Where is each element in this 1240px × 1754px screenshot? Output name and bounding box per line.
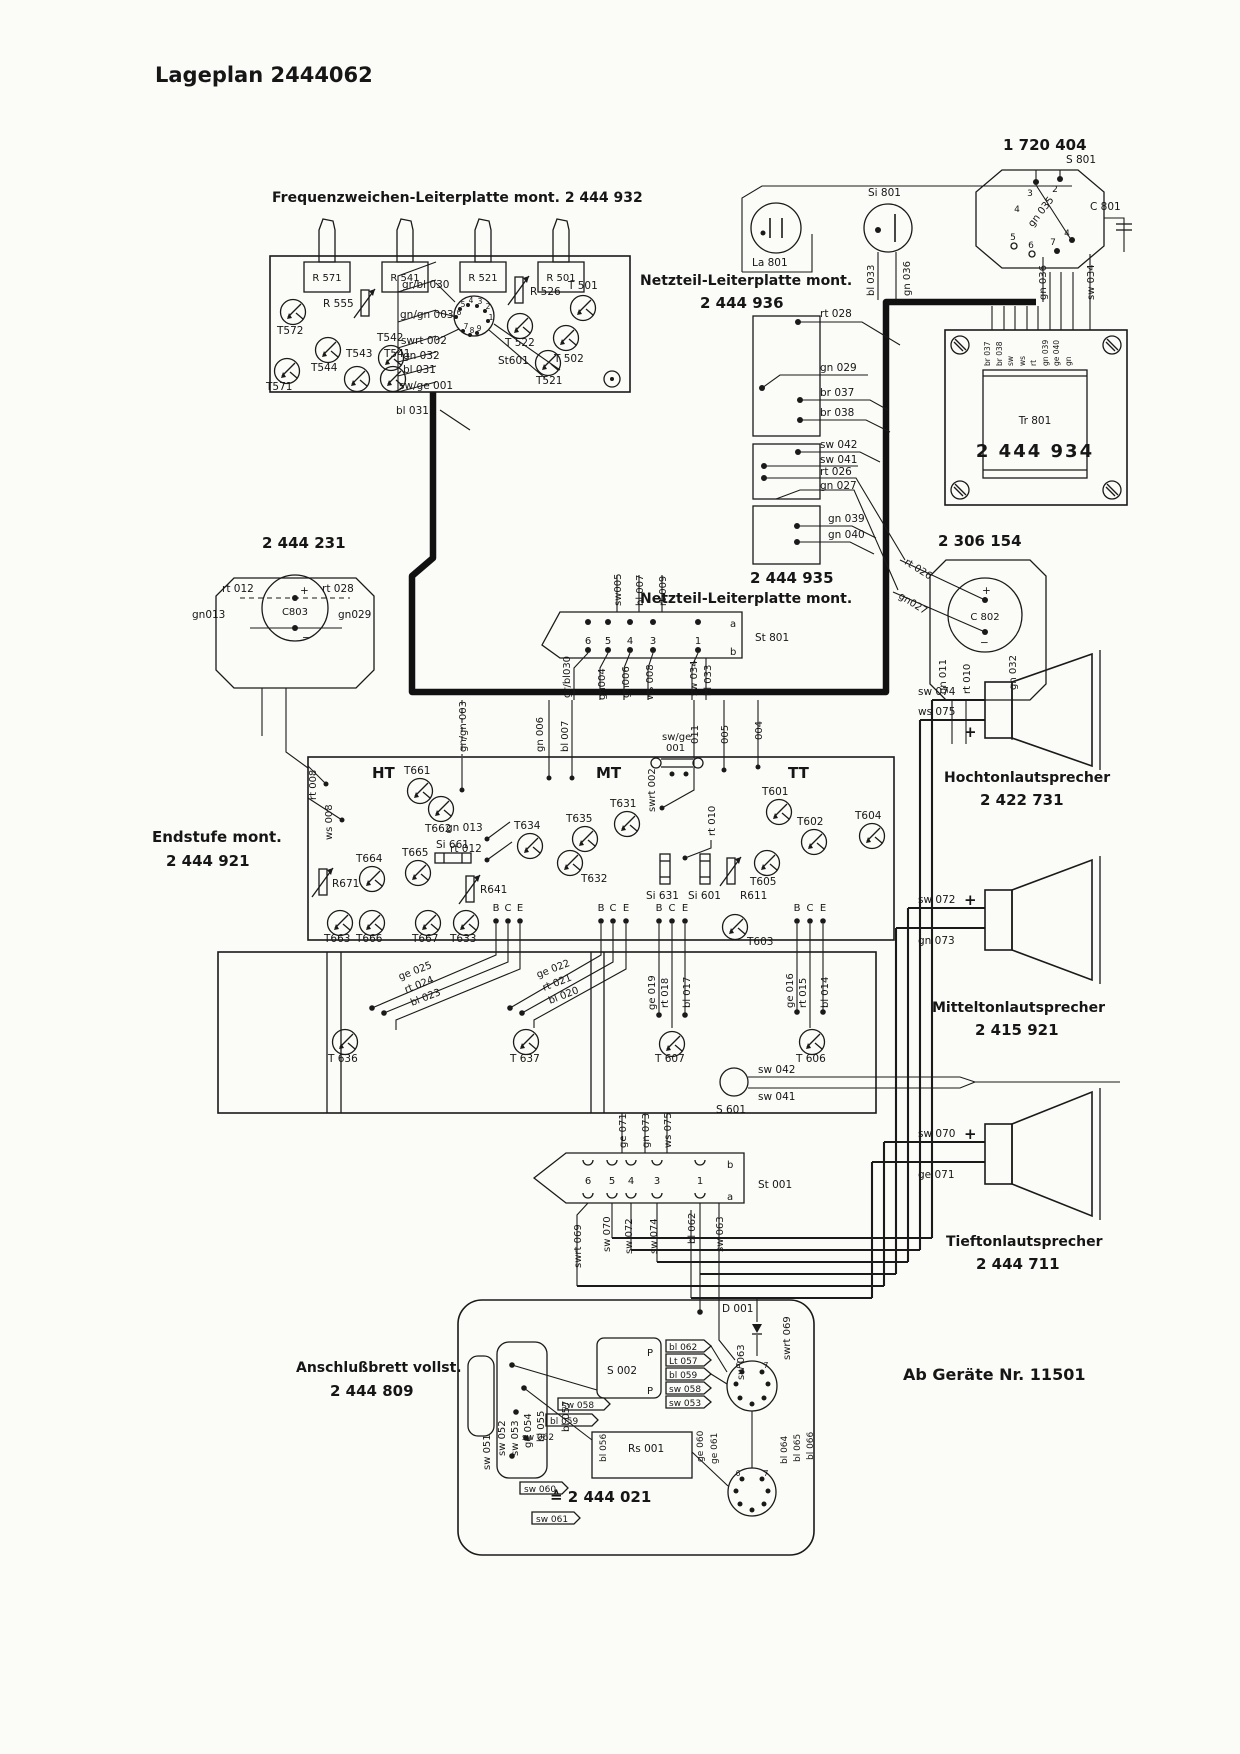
part-label: T 501 xyxy=(567,280,598,292)
transistor-icon xyxy=(316,338,341,363)
pin-number: 3 xyxy=(478,297,483,306)
st001-connector: ge 071 gn 073 ws 075 6 5 4 3 1 b a St 00… xyxy=(534,1112,792,1310)
fuse-icon xyxy=(700,854,710,884)
terminal-label: E xyxy=(820,903,826,914)
bce-group-2: BCE xyxy=(598,903,630,924)
part-label: T632 xyxy=(580,873,607,885)
wire-label: rt 018 xyxy=(660,978,671,1008)
part-label: C 802 xyxy=(970,612,999,623)
row-label: b xyxy=(727,1160,733,1171)
part-label: T661 xyxy=(403,765,430,777)
transistor-icon xyxy=(802,830,827,855)
pin-number: 5 xyxy=(609,1176,615,1187)
part-label: T543 xyxy=(345,348,372,360)
wire-label: gr/bl030 xyxy=(562,656,573,698)
wire-label: ge 040 xyxy=(1052,340,1061,366)
wire-label: sw/ge 001 xyxy=(399,380,453,392)
pin-number: 2 xyxy=(1052,185,1058,195)
wire-label: bl 066 xyxy=(806,1431,816,1460)
resistor-icon xyxy=(354,289,375,318)
part-label: C 801 xyxy=(1090,201,1121,213)
part-number: 2 444 934 xyxy=(976,441,1094,462)
polarity-plus: + xyxy=(964,891,977,909)
terminal-label: P xyxy=(647,1386,653,1397)
wire-label: gn006 xyxy=(621,666,632,698)
wire-label: sw005 xyxy=(613,574,624,606)
part-number: 2 444 936 xyxy=(700,294,784,312)
part-label: T634 xyxy=(513,820,541,832)
wire-label: 004 xyxy=(754,721,765,740)
wire-label: gn 073 xyxy=(918,935,955,947)
wire-label: gn/gn 003 xyxy=(458,701,469,752)
part-number: 2 444 711 xyxy=(976,1255,1060,1273)
wire-label: bl 031 xyxy=(396,405,429,417)
wire-label: sw 052 xyxy=(497,1420,508,1456)
part-label: Si 631 xyxy=(646,890,679,902)
pin-number: 6 xyxy=(457,308,462,317)
terminal-label: E xyxy=(623,903,629,914)
transistor-icon xyxy=(558,851,583,876)
section-label: TT xyxy=(788,764,810,782)
terminal-label: B xyxy=(598,903,605,914)
part-label: Si 801 xyxy=(868,187,901,199)
transistor-icon xyxy=(615,812,640,837)
part-label: T 636 xyxy=(327,1053,358,1065)
part-label: T605 xyxy=(749,876,776,888)
wire-label: rt 012 xyxy=(222,583,254,595)
wire-label: sw 058 xyxy=(669,1385,701,1395)
part-label: T 637 xyxy=(509,1053,540,1065)
part-label: T542 xyxy=(376,332,403,344)
transistor-icon xyxy=(275,359,300,384)
terminal-label: C xyxy=(610,903,617,914)
fuse-si801: Si 801 bl 033 gn 036 xyxy=(864,187,913,300)
pin-number: 9 xyxy=(477,324,482,333)
part-label: T666 xyxy=(355,933,383,945)
part-label: T635 xyxy=(565,813,592,825)
part-label: T631 xyxy=(609,798,636,810)
speaker-name: Mitteltonlautsprecher xyxy=(932,1000,1105,1016)
wire-label: sw 034 xyxy=(689,660,700,696)
polarity-plus: + xyxy=(964,1125,977,1143)
wire-label: sw/ge xyxy=(662,732,691,743)
wire-label: gn 013 xyxy=(446,822,483,834)
wire-label: bl 031 xyxy=(403,364,436,376)
fuse-icon xyxy=(660,854,670,884)
wire-label: swrt 069 xyxy=(782,1316,793,1360)
speaker-name: Tieftonlautsprecher xyxy=(946,1234,1103,1250)
section-label: HT xyxy=(372,764,396,782)
wire-label: gn 032 xyxy=(403,350,440,362)
part-label: T633 xyxy=(449,933,476,945)
wire-label: gn 032 xyxy=(1008,655,1019,690)
bce-group-4: BCE xyxy=(794,903,827,924)
chassis: ge 025 rt 024 bl 023 T 636 ge 022 rt 021… xyxy=(218,924,1120,1116)
wire-label: sw 074 xyxy=(649,1218,660,1254)
terminal-label: C xyxy=(505,903,512,914)
wire-label: bl 064 xyxy=(780,1435,790,1464)
part-number: 2 444 809 xyxy=(330,1382,414,1400)
wire-label: rt 026 xyxy=(820,466,852,478)
wire-label: sw 070 xyxy=(918,1128,955,1140)
wire-label: swrt 002 xyxy=(647,768,658,812)
part-number: 2 422 731 xyxy=(980,791,1064,809)
screw-icon xyxy=(1103,481,1121,499)
section-label: MT xyxy=(596,764,622,782)
pin-number: 5 xyxy=(605,636,611,647)
part-label: T521 xyxy=(535,375,562,387)
pot-label: R 571 xyxy=(312,273,341,284)
part-label: R 555 xyxy=(323,298,354,310)
part-label: Rs 001 xyxy=(628,1443,664,1455)
part-label: C803 xyxy=(282,607,308,618)
part-label: T 606 xyxy=(795,1053,826,1065)
layout-diagram: Lageplan 2444062 Ab Geräte Nr. 11501 Fre… xyxy=(0,0,1240,1754)
wire-label: ge 061 xyxy=(710,1433,720,1464)
part-number: 2 444 921 xyxy=(166,852,250,870)
transformer-tr801: Tr 801 2 444 934 br 037 br 038 sw ws rt … xyxy=(945,272,1127,505)
wire-label: sw xyxy=(1006,356,1015,366)
wire-label: ws xyxy=(1018,356,1027,366)
transistor-icon xyxy=(573,827,598,852)
board-caption: Netzteil-Leiterplatte mont. xyxy=(640,273,852,289)
row-label: b xyxy=(730,647,736,658)
wire-label: gn027 xyxy=(896,591,929,617)
part-number: 2 306 154 xyxy=(938,532,1022,550)
wire-label: bl 007 xyxy=(635,575,646,606)
footer-note: Ab Geräte Nr. 11501 xyxy=(903,1365,1085,1384)
part-label: T 607 xyxy=(654,1053,685,1065)
wire-label: bl 056 xyxy=(599,1433,609,1462)
wire-label: 005 xyxy=(720,725,731,744)
capacitor-c803: 2 444 231 + C803 − rt 012 rt 028 gn013 g… xyxy=(192,534,374,768)
wire-label: rt 012 xyxy=(450,843,482,855)
pin-number: 1 xyxy=(697,1176,703,1187)
part-label: D 001 xyxy=(722,1303,753,1315)
wire-label: bl 007 xyxy=(560,721,571,752)
pin-number: 4 xyxy=(1014,205,1020,215)
part-label: T601 xyxy=(761,786,788,798)
part-label: T664 xyxy=(355,853,383,865)
minus-sign: − xyxy=(980,637,989,649)
wire-label: sw 061 xyxy=(536,1515,568,1525)
wire-label: swrt 069 xyxy=(573,1224,584,1268)
pin-number: 1 xyxy=(489,313,494,322)
part-number: 1 720 404 xyxy=(1003,136,1087,154)
wire-label: gn xyxy=(1064,356,1073,366)
wire-label: sw 041 xyxy=(758,1091,795,1103)
part-label: T572 xyxy=(276,325,303,337)
pin-number: 8 xyxy=(470,326,475,335)
board-caption: Anschlußbrett vollst. xyxy=(296,1360,462,1376)
terminal-label: C xyxy=(807,903,814,914)
wire-label: ws 008 xyxy=(645,664,656,700)
pin-number: 7 xyxy=(464,322,469,331)
pin-number: 7 xyxy=(1050,238,1056,248)
wire-label: bl 065 xyxy=(793,1434,803,1462)
transistor-icon xyxy=(360,867,385,892)
transistor-icon xyxy=(508,314,533,339)
wire-label: bl 062 xyxy=(669,1343,697,1353)
wire-label: gn 073 xyxy=(641,1113,652,1148)
wire-label: sw 072 xyxy=(624,1218,635,1254)
wire-label: swrt 002 xyxy=(401,335,447,347)
row-label: a xyxy=(730,619,736,630)
transistor-icon xyxy=(767,800,792,825)
wire-label: gn 035 xyxy=(1026,195,1056,229)
part-label: R611 xyxy=(740,890,767,902)
wire-label: sw 041 xyxy=(820,454,857,466)
wire-label: sw 074 xyxy=(918,686,956,698)
part-label: T603 xyxy=(746,936,773,948)
wire-label: ge 016 xyxy=(785,973,796,1008)
speaker-tiefton: sw 070 ge 071 + Tieftonlautsprecher 2 44… xyxy=(872,1088,1103,1273)
transistor-icon xyxy=(416,911,441,936)
wire-label: ge 071 xyxy=(618,1113,629,1148)
part-label: S 601 xyxy=(716,1104,746,1116)
part-label: T604 xyxy=(854,810,882,822)
wire-label: ge 071 xyxy=(918,1169,955,1181)
st801-connector: 2 444 935 Netzteil-Leiterplatte mont. sw… xyxy=(542,569,852,700)
wire-label: Lt 057 xyxy=(669,1357,698,1367)
terminal-label: E xyxy=(517,903,523,914)
wire-label: br 038 xyxy=(820,407,854,419)
terminal-label: E xyxy=(682,903,688,914)
part-label: Si 601 xyxy=(688,890,721,902)
pot-label: R 521 xyxy=(468,273,497,284)
part-label: T667 xyxy=(411,933,438,945)
pin-number: 4 xyxy=(628,1176,634,1187)
wire-label: bl 014 xyxy=(820,977,831,1008)
wire-label: rt 010 xyxy=(707,806,718,836)
resistor-icon xyxy=(720,857,741,886)
pin-number: 6 xyxy=(585,636,591,647)
part-number: 2 444 231 xyxy=(262,534,346,552)
part-label: St 801 xyxy=(755,632,789,644)
resistor-icon xyxy=(312,868,333,897)
wire-label: rt xyxy=(1029,360,1038,366)
wire-label: 011 xyxy=(690,725,701,744)
speaker-cables xyxy=(577,700,932,1298)
wire-label: sw 042 xyxy=(820,439,857,451)
pin-number: 5 xyxy=(1010,233,1016,243)
wire-label: sw 060 xyxy=(524,1485,556,1495)
wire-label: gn 027 xyxy=(820,480,857,492)
transistor-icon xyxy=(860,824,885,849)
part-label: T663 xyxy=(323,933,350,945)
transistor-icon xyxy=(281,300,306,325)
wire-label: gn013 xyxy=(192,609,225,621)
screw-icon xyxy=(951,336,969,354)
board-caption: Netzteil-Leiterplatte mont. xyxy=(640,591,852,607)
wire-label: br 037 xyxy=(983,341,992,366)
transistor-icon xyxy=(800,1030,825,1055)
wire-label: br 038 xyxy=(995,341,1004,366)
transistor-icon xyxy=(571,296,596,321)
din-connector-1: 6 7 xyxy=(727,1361,777,1411)
pin-number: 4 xyxy=(627,636,633,647)
wire-label: gn 036 xyxy=(902,261,913,296)
wire-label: gn004 xyxy=(597,668,608,700)
resistor-icon xyxy=(459,875,480,904)
transformer-wire-labels: br 037 br 038 sw ws rt gn 039 ge 040 gn xyxy=(983,272,1073,366)
capacitor-c802: 2 306 154 rt 026 gn027 + C 802 − gn 011 … xyxy=(893,532,1046,744)
screw-icon xyxy=(951,481,969,499)
pin-number: 3 xyxy=(654,1176,660,1187)
pin-number: 3 xyxy=(1027,189,1033,199)
transistor-icon xyxy=(454,911,479,936)
polarity-plus: + xyxy=(964,723,977,741)
terminal-label: P xyxy=(647,1348,653,1359)
wire-label: bl 062 xyxy=(687,1213,698,1244)
part-label: R 526 xyxy=(530,286,561,298)
part-label: R671 xyxy=(332,878,359,890)
speaker-name: Hochtonlautsprecher xyxy=(944,770,1110,786)
freq-crossover-board: Frequenzweichen-Leiterplatte mont. 2 444… xyxy=(265,190,643,430)
wire-label: gn 006 xyxy=(535,717,546,752)
terminal-label: B xyxy=(656,903,663,914)
board-caption: Endstufe mont. xyxy=(152,828,282,846)
wire-label: rt 028 xyxy=(820,308,852,320)
wire-label: bl 033 xyxy=(703,665,714,696)
transistor-icon xyxy=(360,911,385,936)
part-number: 2 444 935 xyxy=(750,569,834,587)
wire-label: sw 058 xyxy=(562,1401,594,1411)
capacitor-c801: C 801 xyxy=(1090,201,1132,252)
wire-label: gn 029 xyxy=(820,362,857,374)
wire-label: ws 075 xyxy=(663,1112,674,1148)
transistor-icon xyxy=(723,915,748,940)
plug-s801: S 801 3 2 4 5 6 7 gn 035 4 xyxy=(976,154,1104,268)
wire-label: rt 008 xyxy=(308,770,319,800)
wire-label: rt 026 xyxy=(902,557,934,582)
part-label: R641 xyxy=(480,884,507,896)
part-label: T544 xyxy=(310,362,338,374)
part-label: St601 xyxy=(498,355,529,367)
pin-number: 6 xyxy=(736,1361,741,1370)
pin-number: 2 xyxy=(486,302,491,311)
bce-group-3: BCE xyxy=(656,903,689,924)
wire-label: br 037 xyxy=(820,387,854,399)
transistor-icon xyxy=(408,779,433,804)
wire-label: rt 010 xyxy=(962,664,973,694)
part-label: St 001 xyxy=(758,1179,792,1191)
transistor-icon xyxy=(755,851,780,876)
pin-number: 6 xyxy=(736,1469,741,1478)
transistor-icon xyxy=(554,326,579,351)
wire-label: bl 059 xyxy=(669,1371,698,1381)
wire-label: sw 034 xyxy=(1086,264,1097,300)
wire-label: gn029 xyxy=(338,609,371,621)
pin-number: 7 xyxy=(764,1469,769,1478)
transistor-icon xyxy=(328,911,353,936)
screw-icon xyxy=(1103,336,1121,354)
wire-label: rt 015 xyxy=(798,978,809,1008)
pin-number: 3 xyxy=(650,636,656,647)
wire-label: rt 009 xyxy=(658,576,669,606)
transistor-icon xyxy=(429,797,454,822)
wire-label: sw 053 xyxy=(669,1399,701,1409)
wire-label: sw 070 xyxy=(602,1216,613,1252)
wire-label: ge 019 xyxy=(647,975,658,1010)
terminal-label: B xyxy=(493,903,500,914)
transistor-icon xyxy=(406,861,431,886)
endstufe-board: Endstufe mont. 2 444 921 HT MT TT rt 008… xyxy=(152,700,894,948)
s601-switch: sw 042 sw 041 S 601 xyxy=(716,1064,1120,1116)
pin-number: 6 xyxy=(585,1176,591,1187)
wire-label: sw 051 xyxy=(482,1434,493,1470)
transistor-icon xyxy=(345,367,370,392)
din-connector-2: 6 7 xyxy=(728,1468,776,1516)
wire-label: sw 062 xyxy=(522,1433,554,1443)
pin-number: 7 xyxy=(764,1361,769,1370)
wire-label: rt 028 xyxy=(322,583,354,595)
part-label: La 801 xyxy=(752,257,788,269)
plus-sign: + xyxy=(982,585,991,597)
pin-number: 4 xyxy=(469,296,474,305)
part-label: T571 xyxy=(265,381,292,393)
part-label: Tr 801 xyxy=(1018,415,1052,427)
lamp-la801: La 801 xyxy=(751,203,801,269)
transistor-icon xyxy=(518,834,543,859)
terminal-label: C xyxy=(669,903,676,914)
wire-label: gr/bl 030 xyxy=(402,279,449,291)
wire-label-stack: bl 062 Lt 057 bl 059 sw 058 sw 053 xyxy=(666,1340,711,1409)
wire-label: gn 040 xyxy=(828,529,865,541)
pin-number: 1 xyxy=(695,636,701,647)
schematic-page: Lageplan 2444062 Ab Geräte Nr. 11501 Fre… xyxy=(0,0,1240,1754)
bce-group-1: BCE xyxy=(493,903,524,924)
transistor-icon xyxy=(514,1030,539,1055)
wire-label: gn 039 xyxy=(1041,340,1050,366)
row-label: a xyxy=(727,1192,733,1203)
wire-label: 001 xyxy=(666,743,685,754)
netzteil-936: Netzteil-Leiterplatte mont. 2 444 936 rt… xyxy=(640,273,905,590)
wire-label: bl 033 xyxy=(866,265,877,296)
part-label: S 002 xyxy=(607,1365,637,1377)
transistor-icon xyxy=(333,1030,358,1055)
wire-label: ws 075 xyxy=(918,706,955,718)
part-label: S 801 xyxy=(1066,154,1096,166)
wire-label: sw 053 xyxy=(510,1420,521,1456)
pin-number: 6 xyxy=(1028,241,1034,251)
board-caption: Frequenzweichen-Leiterplatte mont. 2 444… xyxy=(272,190,643,206)
minus-sign: − xyxy=(302,632,311,644)
page-title: Lageplan 2444062 xyxy=(155,63,373,87)
wire-label: gn/gn 003 xyxy=(400,309,454,321)
wire-label: sw 063 xyxy=(715,1216,726,1252)
plus-sign: + xyxy=(300,585,309,597)
wire-label: sw 072 xyxy=(918,894,955,906)
part-label: T602 xyxy=(796,816,823,828)
wire-label: sw 042 xyxy=(758,1064,795,1076)
speaker-mittelton: sw 072 gn 073 + Mitteltonlautsprecher 2 … xyxy=(896,856,1105,1039)
part-label: T665 xyxy=(401,847,428,859)
wire-label: gn 039 xyxy=(828,513,865,525)
anschlussbrett-panel: Anschlußbrett vollst. 2 444 809 D 001 sw… xyxy=(296,1274,816,1555)
resistor-icon xyxy=(508,276,529,305)
wire-label: bl 017 xyxy=(682,977,693,1008)
terminal-label: B xyxy=(794,903,801,914)
part-number: 2 415 921 xyxy=(975,1021,1059,1039)
